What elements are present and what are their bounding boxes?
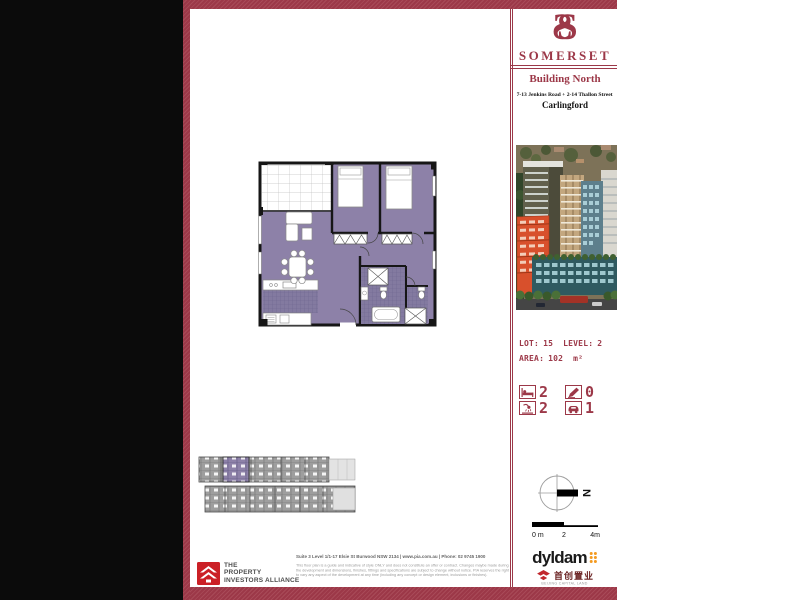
bathrooms-count: 2 [539,401,548,415]
cars-count: 1 [585,401,594,415]
disclaimer: This floor plan is a guide and indicativ… [296,563,515,578]
scale-end-label: 4m [590,532,600,539]
beijing-capital-land-logo: 首创置业 BEIJING CAPITAL LAND [513,569,617,588]
feature-bathrooms: 2 [519,401,565,415]
partner-name-en: BEIJING CAPITAL LAND [542,582,588,586]
suburb: Carlingford [513,100,617,110]
balcony [262,165,332,211]
feature-bedrooms: 2 [519,385,565,399]
feature-study: 0 [565,385,611,399]
floor-key-plan [195,455,358,517]
building-address: 7-13 Jenkins Road + 2-14 Thallon Street [513,91,617,100]
somerset-monogram-icon: S S [513,11,617,45]
pia-logo-block: THE PROPERTY INVESTORS ALLIANCE [197,562,299,585]
logo-divider-rule [511,65,617,69]
disclaimer-line3: to vary any aspect of the development at… [296,573,515,578]
scale-start-label: 0 m [532,532,544,539]
compass-icon: N [536,469,594,517]
area-value: 102 [548,354,563,363]
page-border-bottom [183,587,617,600]
bed-1 [338,166,363,207]
monogram-s-left: S [552,11,573,45]
highlighted-unit [223,457,249,482]
sofa [286,212,312,224]
shower-icon [519,401,536,415]
scale-mid-label: 2 [562,532,566,539]
building-title: Building North [513,73,617,85]
area-unit: m² [573,354,583,363]
kitchen-floor [263,290,318,313]
brochure-page: S S SOMERSET Building North 7-13 Jenkins… [0,0,800,600]
car-icon [565,401,582,415]
level-label: LEVEL: [563,339,593,348]
feature-summary: 2 0 2 [519,385,611,415]
building-address-text: 7-13 Jenkins Road + 2-14 Thallon Street [517,91,613,97]
study-pencil-icon [565,385,582,399]
pia-name-line3: INVESTORS ALLIANCE [224,577,299,584]
kitchen-bench [263,280,318,290]
pia-name-line1: THE [224,562,299,569]
contact-line: Suite 3 Level 1/1-17 Elsie St Burwood NS… [296,554,512,559]
scale-bar: 0 m 2 4m [531,519,601,541]
bed-2 [386,166,412,209]
lot-label: LOT: [519,339,539,348]
north-label: N [580,489,592,497]
brand-name: SOMERSET [513,48,617,64]
pia-house-icon [197,562,220,585]
dyldam-dots-icon [589,551,598,564]
page-border-left [183,0,190,600]
building-render-image [516,145,617,310]
somerset-logo: S S SOMERSET [513,11,617,64]
developer-name: dyldam [532,549,587,566]
partner-name-cn: 首创置业 [554,569,594,582]
unit-floor-plan [256,156,442,330]
capital-land-diamond-icon [536,570,551,581]
lot-level-line: LOT:15LEVEL:2 [519,339,602,348]
bed-icon [519,385,536,399]
area-line: AREA:102m² [519,354,583,363]
area-label: AREA: [519,354,544,363]
viewer-black-margin [0,0,183,600]
feature-cars: 1 [565,401,611,415]
pia-name-line2: PROPERTY [224,569,299,576]
bedrooms-count: 2 [539,385,548,399]
dyldam-logo: dyldam [513,549,617,566]
north-arrow [557,490,578,497]
study-count: 0 [585,385,594,399]
level-value: 2 [597,339,602,348]
lot-value: 15 [543,339,553,348]
